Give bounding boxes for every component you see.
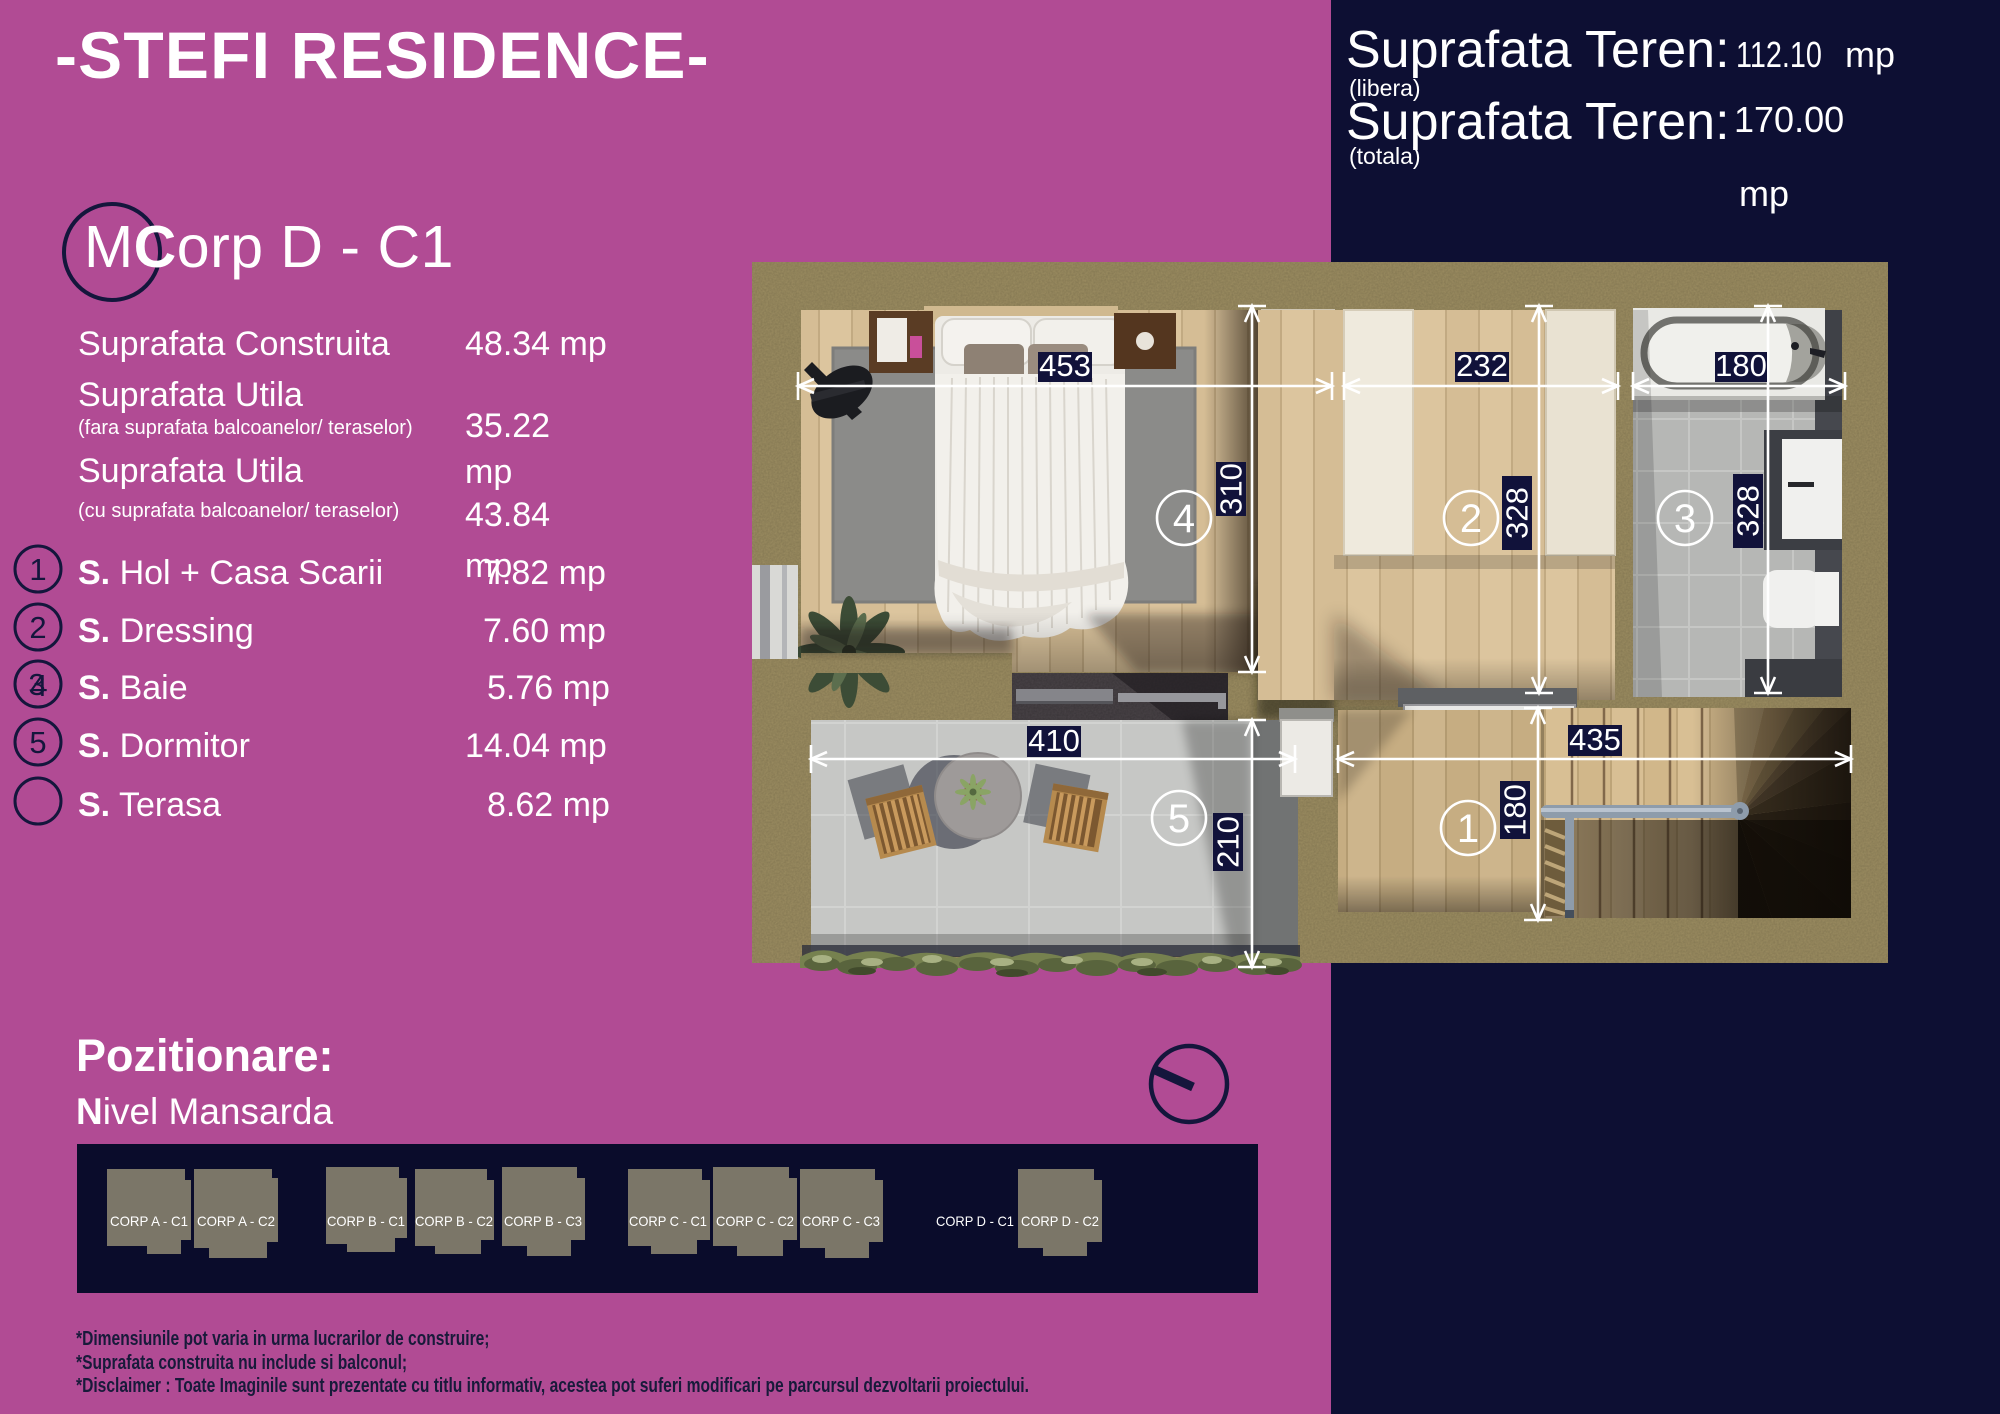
svg-text:CORP C - C3: CORP C - C3 <box>802 1213 880 1229</box>
svg-text:CORP C - C2: CORP C - C2 <box>716 1213 794 1229</box>
svg-text:435: 435 <box>1569 722 1621 757</box>
svg-text:453: 453 <box>1039 348 1091 383</box>
svg-text:4: 4 <box>1173 497 1195 541</box>
svg-text:328: 328 <box>1731 485 1766 537</box>
svg-text:210: 210 <box>1211 816 1246 868</box>
svg-text:3: 3 <box>1674 497 1696 541</box>
svg-text:2: 2 <box>29 610 46 645</box>
svg-text:328: 328 <box>1500 487 1535 539</box>
svg-text:5: 5 <box>29 725 46 760</box>
svg-text:CORP B - C2: CORP B - C2 <box>415 1213 493 1229</box>
svg-text:CORP A - C2: CORP A - C2 <box>197 1213 275 1229</box>
svg-text:4: 4 <box>30 668 47 703</box>
svg-text:410: 410 <box>1028 723 1080 758</box>
svg-text:CORP B - C1: CORP B - C1 <box>327 1213 405 1229</box>
svg-text:CORP D - C1: CORP D - C1 <box>936 1213 1014 1229</box>
svg-text:180: 180 <box>1498 784 1533 836</box>
svg-text:CORP C - C1: CORP C - C1 <box>629 1213 707 1229</box>
svg-text:180: 180 <box>1715 348 1767 383</box>
svg-text:CORP B - C3: CORP B - C3 <box>504 1213 582 1229</box>
svg-text:CORP A - C1: CORP A - C1 <box>110 1213 188 1229</box>
svg-text:1: 1 <box>29 552 46 587</box>
svg-text:2: 2 <box>1460 497 1482 541</box>
svg-text:232: 232 <box>1456 348 1508 383</box>
svg-text:5: 5 <box>1168 797 1190 841</box>
svg-text:1: 1 <box>1457 807 1479 851</box>
svg-text:310: 310 <box>1214 463 1249 515</box>
svg-text:CORP D - C2: CORP D - C2 <box>1021 1213 1099 1229</box>
